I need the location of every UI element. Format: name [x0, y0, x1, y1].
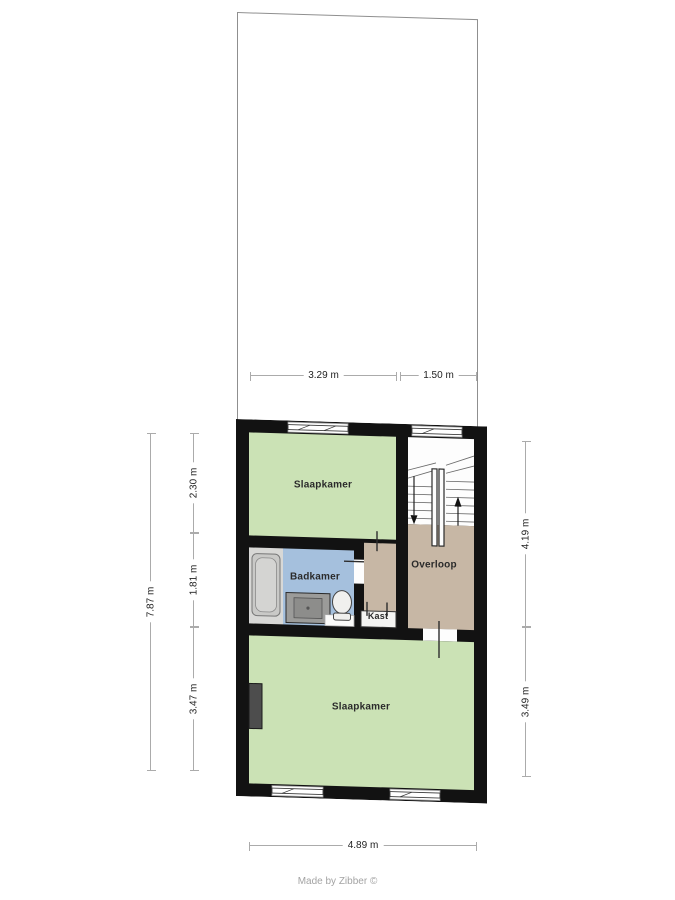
dimension-right-top: 4.19 m [525, 441, 526, 627]
floorplan-svg [236, 419, 487, 803]
vanity-sink [286, 592, 330, 623]
dimension-right-bottom: 3.49 m [525, 627, 526, 777]
bedroom-bottom-floor [249, 635, 474, 790]
upper-level-outline [237, 12, 478, 428]
dimension-left-bottom: 3.47 m [193, 627, 194, 771]
dimension-top-left: 3.29 m [250, 375, 397, 376]
floorplan-drawing [236, 10, 487, 807]
room-label-landing: Overloop [411, 560, 457, 571]
window [288, 422, 348, 434]
window [390, 789, 440, 800]
credit-text: Made by Zibber © [298, 876, 378, 887]
dimension-left-total: 7.87 m [150, 433, 151, 771]
room-label-bedroom-top: Slaapkamer [294, 480, 352, 491]
dimension-top-right: 1.50 m [400, 375, 477, 376]
floorplan-page: Slaapkamer Badkamer Overloop Kast Slaapk… [0, 0, 675, 900]
window [412, 426, 462, 437]
chimney-breast [249, 683, 262, 728]
room-label-closet: Kast [368, 611, 388, 621]
dimension-bottom-width: 4.89 m [249, 845, 477, 846]
room-label-bedroom-bottom: Slaapkamer [332, 702, 390, 713]
dimension-left-middle: 1.81 m [193, 533, 194, 627]
corridor-floor [364, 543, 396, 612]
dimension-left-top: 2.30 m [193, 433, 194, 533]
bathtub [252, 553, 280, 616]
room-label-bathroom: Badkamer [290, 572, 340, 583]
window [272, 786, 323, 798]
